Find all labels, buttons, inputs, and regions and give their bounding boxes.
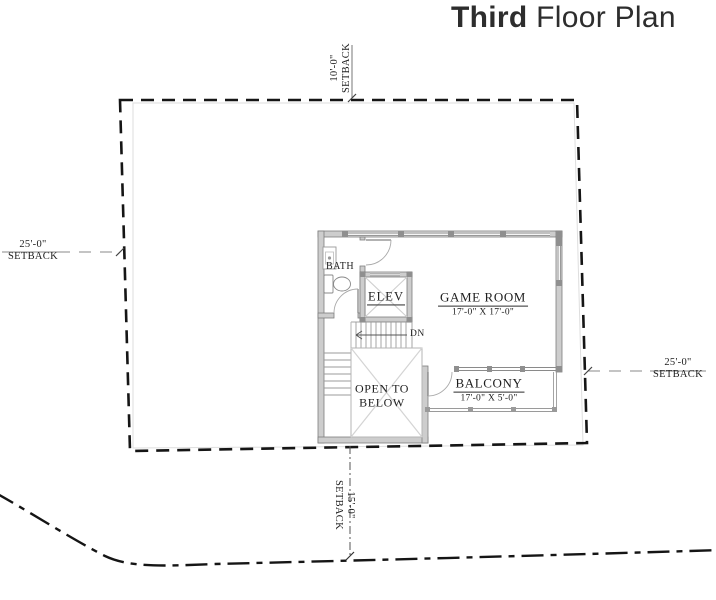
bath-label: BATH	[326, 262, 354, 273]
setback-label-top: 10'-0" SETBACK	[329, 43, 353, 93]
open-to-below-label: OPEN TO BELOW	[355, 382, 409, 411]
page-title-rest: Floor Plan	[528, 1, 676, 34]
setback-right-text: SETBACK	[653, 369, 703, 381]
setback-bottom-dimension: 15'-0"	[344, 480, 356, 530]
toilet-symbol	[324, 275, 351, 293]
elevator-name: ELEV	[367, 290, 405, 305]
game-room-dimensions: 17'-0" X 17'-0"	[438, 308, 528, 318]
game-room-name: GAME ROOM	[438, 291, 528, 307]
stair-dn-label: DN	[410, 329, 425, 339]
street-centerline	[0, 492, 716, 566]
floor-plan-sheet: Third Floor Plan 10'-0" SETBACK 25'-0" S…	[0, 0, 716, 600]
open-to-below-line2: BELOW	[355, 396, 409, 410]
balcony-label: BALCONY 17'-0" X 5'-0"	[453, 376, 524, 405]
setback-top-text: SETBACK	[341, 43, 353, 93]
setback-top-dimension: 10'-0"	[329, 43, 341, 93]
setback-label-left: 25'-0" SETBACK	[8, 239, 58, 263]
bath-entry-door	[366, 240, 391, 265]
bath-toilet-door	[334, 289, 358, 313]
elevator-label: ELEV	[367, 288, 405, 305]
setback-left-dimension: 25'-0"	[8, 239, 58, 251]
bath-name: BATH	[326, 261, 354, 272]
plan-linework	[0, 0, 716, 600]
setback-label-bottom: 15'-0" SETBACK	[332, 480, 356, 530]
game-room-label: GAME ROOM 17'-0" X 17'-0"	[438, 290, 528, 319]
stair-direction-arrow	[356, 331, 407, 339]
setback-label-right: 25'-0" SETBACK	[653, 357, 703, 381]
setback-bottom-text: SETBACK	[332, 480, 344, 530]
balcony-dimensions: 17'-0" X 5'-0"	[453, 394, 524, 404]
page-title-emphasis: Third	[451, 1, 528, 34]
balcony-door	[428, 372, 452, 396]
page-title: Third Floor Plan	[451, 1, 676, 35]
setback-right-dimension: 25'-0"	[653, 357, 703, 369]
balcony-name: BALCONY	[453, 377, 524, 393]
setback-left-text: SETBACK	[8, 251, 58, 263]
open-to-below-line1: OPEN TO	[355, 382, 409, 396]
stair-run-lower	[324, 353, 351, 395]
